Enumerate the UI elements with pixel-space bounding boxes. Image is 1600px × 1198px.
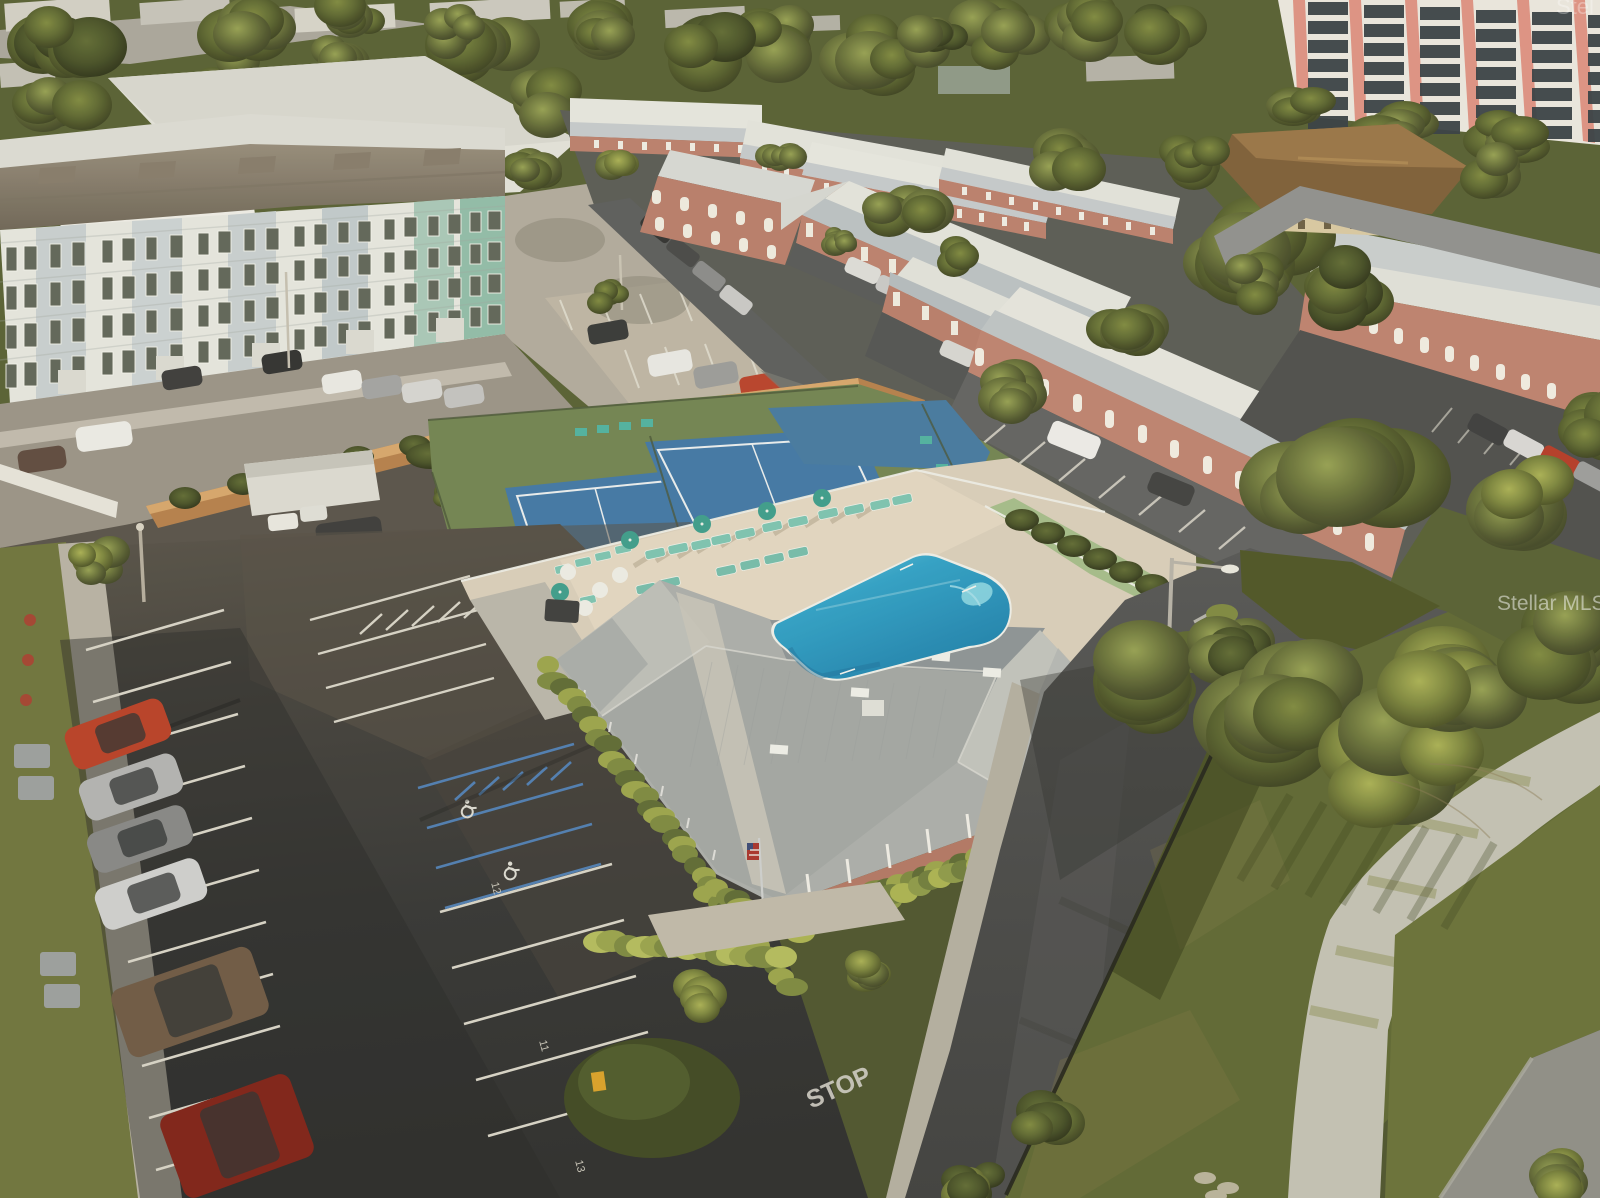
svg-text:Stellar MLS: Stellar MLS bbox=[1497, 592, 1600, 615]
svg-text:Stel: Stel bbox=[1556, 0, 1594, 19]
